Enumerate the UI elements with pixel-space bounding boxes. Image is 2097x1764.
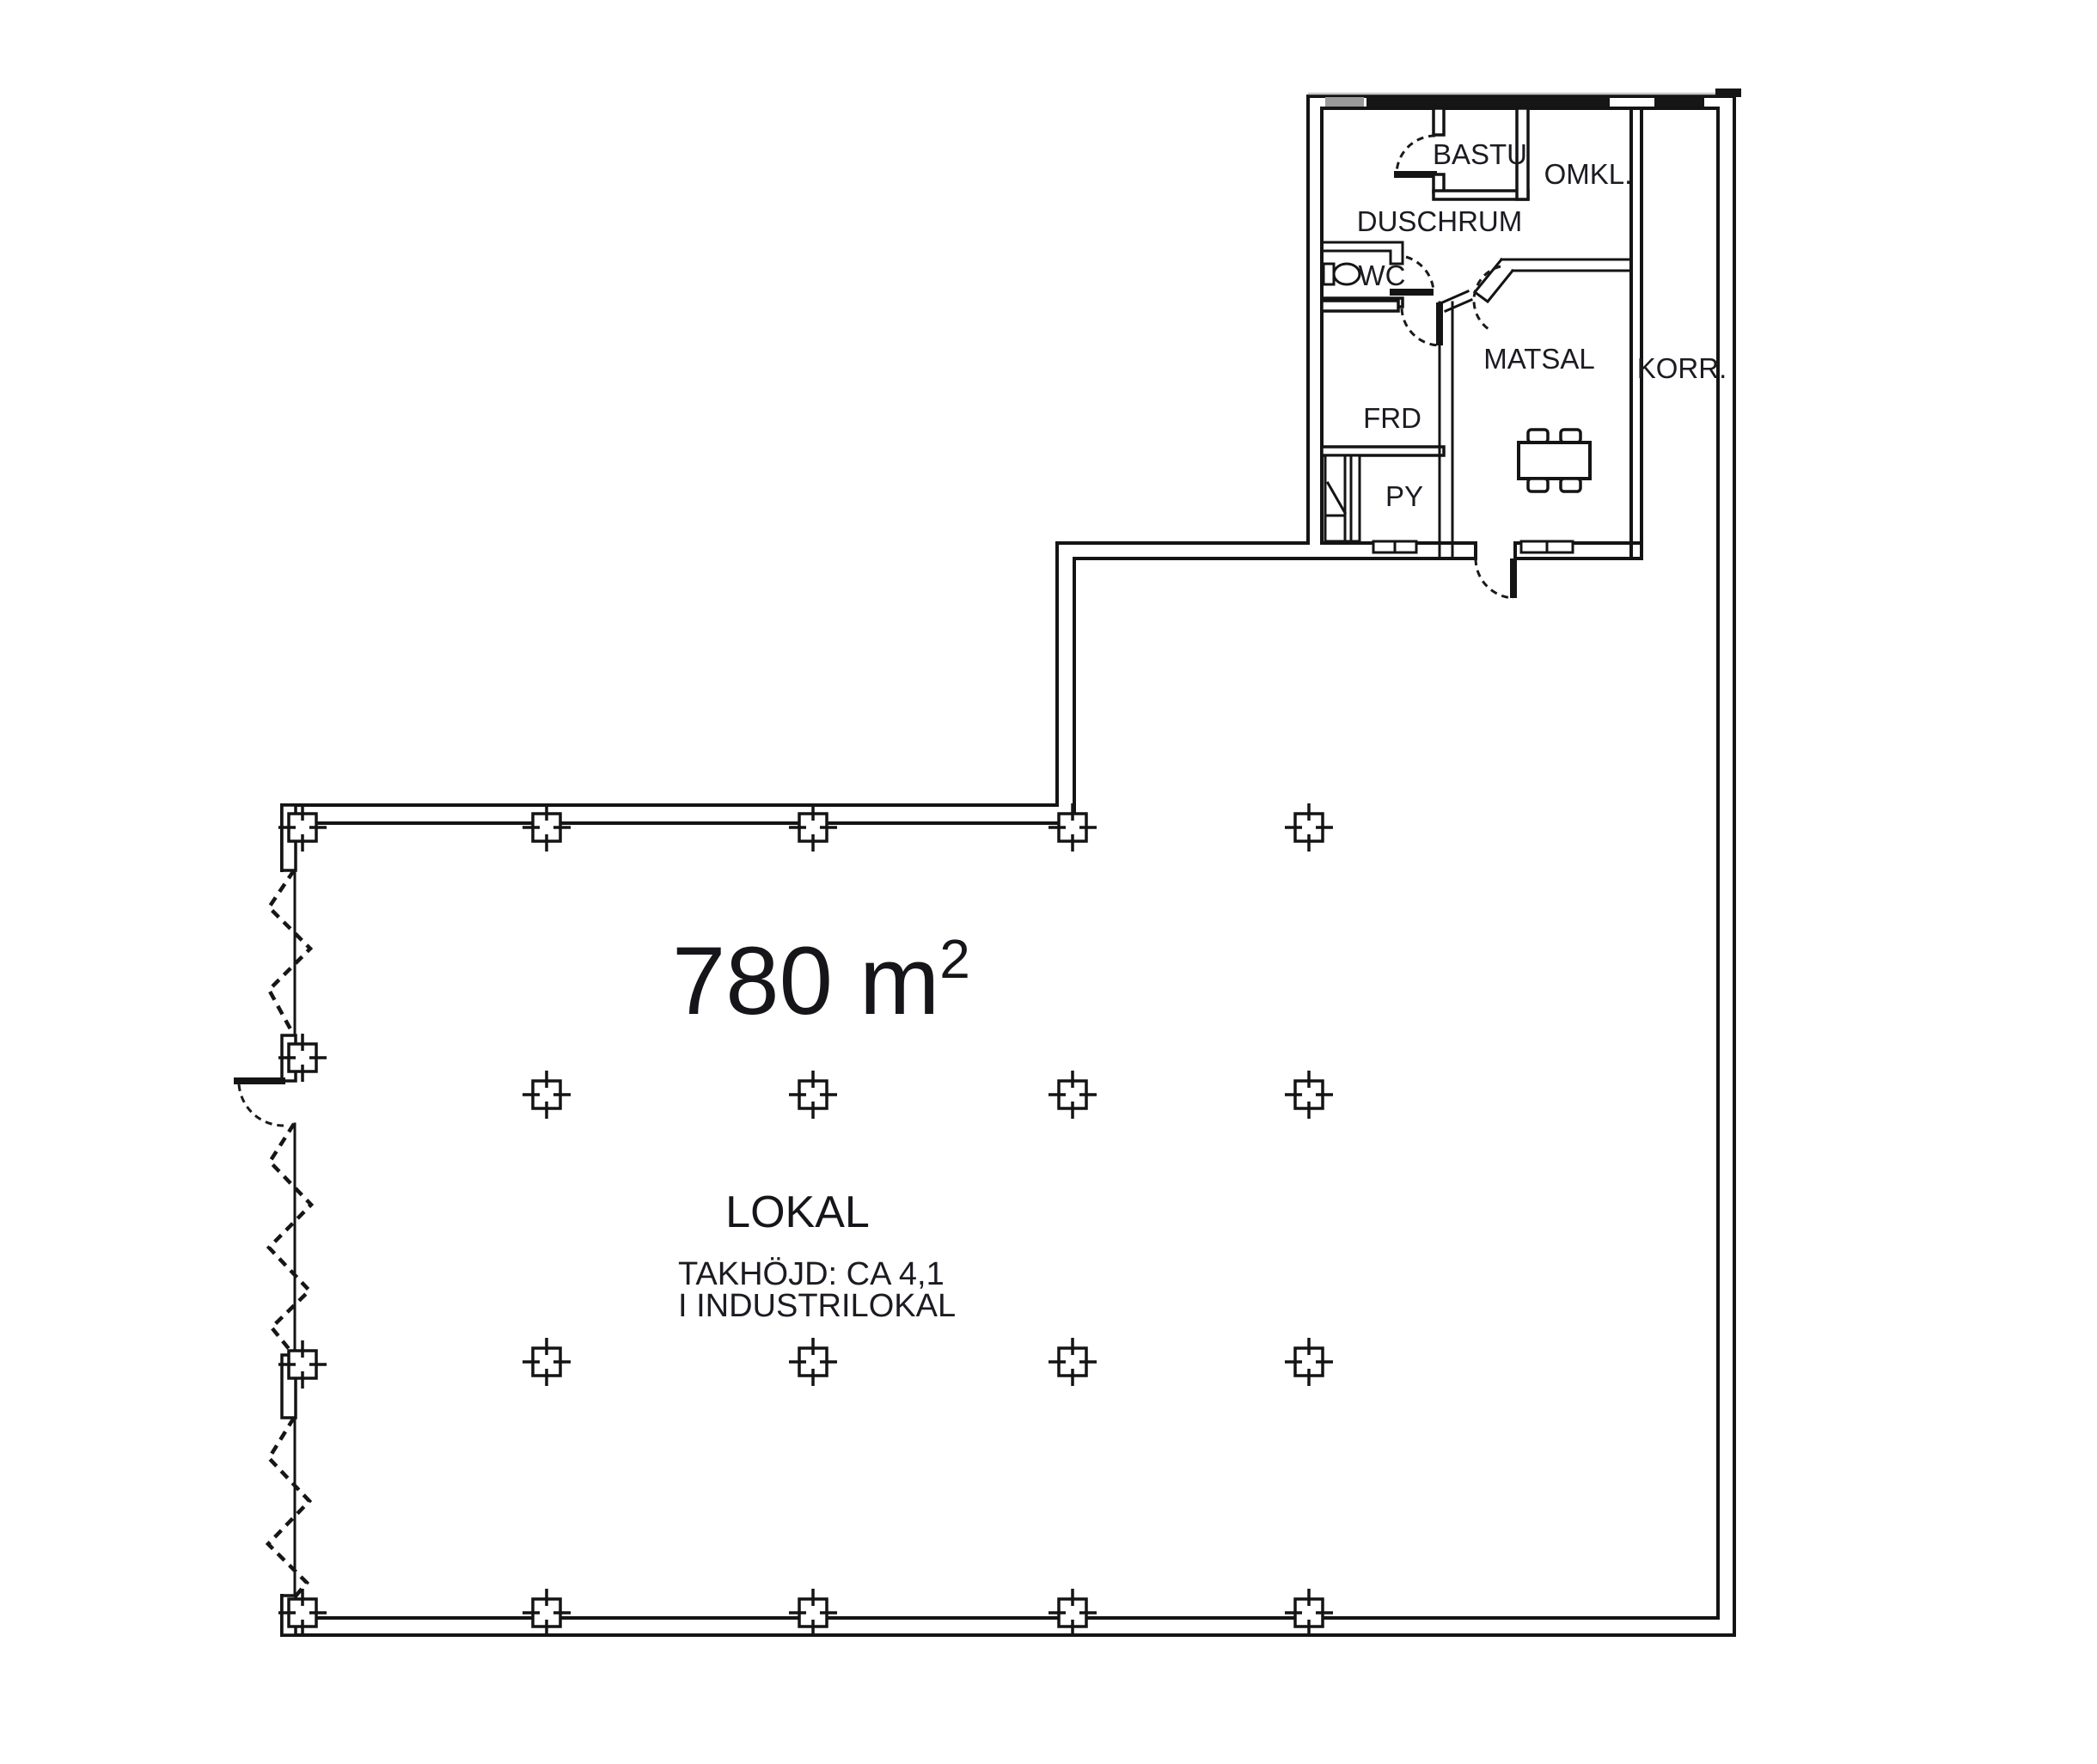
labels: BASTU OMKL. DUSCHRUM WC FRD MATSAL KORR.… [672, 138, 1727, 1324]
top-wall-dark-band [1366, 97, 1610, 107]
room-label-korr: KORR. [1637, 352, 1727, 384]
column-symbol [1048, 1589, 1097, 1637]
room-label-matsal: MATSAL [1483, 343, 1595, 375]
block-bottom-openings [1373, 541, 1573, 598]
room-label-frd: FRD [1363, 402, 1421, 434]
top-wall-dark-band [1325, 97, 1364, 107]
floor-plan-drawing: BASTU OMKL. DUSCHRUM WC FRD MATSAL KORR.… [0, 0, 2097, 1764]
door-swing-arc [1406, 257, 1434, 290]
door-swing-arc [239, 1084, 284, 1126]
omkl-matsal-wall [1474, 259, 1631, 329]
door-swing-arc [1402, 308, 1440, 345]
top-corner-tick [1715, 89, 1741, 97]
area-superscript: 2 [939, 928, 970, 990]
column-symbol [523, 1338, 571, 1386]
left-wall [234, 805, 311, 1635]
column-symbol [523, 803, 571, 851]
room-label-bastu: BASTU [1433, 138, 1527, 170]
door-leaf [234, 1077, 285, 1084]
dining-table-group [1519, 430, 1590, 491]
column-symbol [1285, 1338, 1333, 1386]
window [1521, 541, 1547, 552]
top-wall-dark-band [1654, 96, 1704, 107]
room-label-duschrum: DUSCHRUM [1357, 205, 1523, 237]
py-shaft [1325, 455, 1360, 541]
column-symbol [1285, 1071, 1333, 1119]
door-swing-arc [1397, 136, 1435, 174]
ceiling-note-line2: I INDUSTRILOKAL [678, 1288, 956, 1324]
floor-plan-page: BASTU OMKL. DUSCHRUM WC FRD MATSAL KORR.… [0, 0, 2097, 1764]
room-label-wc: WC [1359, 259, 1406, 291]
window [1373, 541, 1395, 552]
room-label-py: PY [1385, 480, 1423, 512]
column-symbol [789, 1338, 837, 1386]
building-inner-walls [297, 108, 1718, 1618]
area-label: 780 m2 [672, 927, 970, 1035]
column-symbol [789, 1071, 837, 1119]
chair [1561, 479, 1580, 491]
column-symbol [1285, 1589, 1333, 1637]
column-symbol [1048, 1071, 1097, 1119]
ceiling-note-line1: TAKHÖJD: CA 4,1 [678, 1256, 945, 1292]
door-leaf [1510, 558, 1517, 598]
column-symbol [523, 1071, 571, 1119]
left-wall-door [234, 1077, 285, 1126]
zigzag-door-symbol [269, 1124, 311, 1355]
column-symbol [523, 1589, 571, 1637]
toilet-icon [1324, 264, 1360, 284]
door-leaf [1394, 171, 1437, 178]
door-swing-arc [1476, 558, 1513, 598]
dining-table [1519, 443, 1590, 479]
column-symbol [1048, 803, 1097, 851]
zigzag-door-symbol [268, 1418, 309, 1598]
window [1547, 541, 1573, 552]
divider-wall [1440, 291, 1471, 558]
column-symbol [789, 1589, 837, 1637]
hall-name-label: LOKAL [725, 1187, 870, 1237]
chair [1528, 430, 1548, 443]
column-symbol [1048, 1338, 1097, 1386]
chair [1561, 430, 1580, 443]
chair [1528, 479, 1548, 491]
zigzag-door-symbol [269, 870, 310, 1035]
window [1395, 541, 1416, 552]
room-label-omkl: OMKL. [1544, 158, 1633, 190]
building-outer-walls [282, 89, 1741, 1635]
column-symbol [1285, 803, 1333, 851]
column-symbol [789, 803, 837, 851]
